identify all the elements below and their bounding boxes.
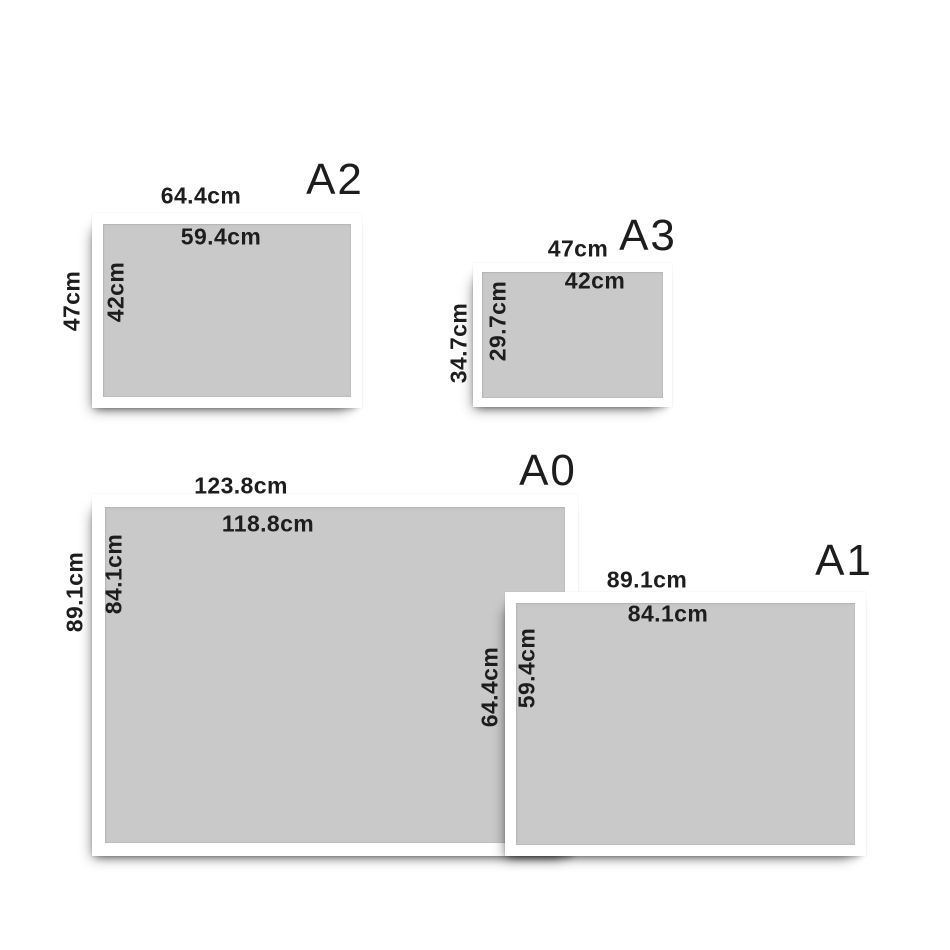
outer-width-label-a1: 89.1cm <box>607 569 687 592</box>
inner-width-label-a0: 118.8cm <box>222 513 314 536</box>
outer-width-label-a2: 64.4cm <box>161 185 241 208</box>
outer-height-label-a0: 89.1cm <box>64 552 87 632</box>
outer-height-label-a3: 34.7cm <box>448 303 471 383</box>
size-label-a1: A1 <box>815 539 873 583</box>
inner-height-label-a0: 84.1cm <box>103 534 126 614</box>
paper-a1 <box>516 603 855 845</box>
inner-height-label-a3: 29.7cm <box>487 281 510 361</box>
outer-width-label-a3: 47cm <box>548 238 608 261</box>
inner-width-label-a1: 84.1cm <box>628 603 708 626</box>
size-label-a2: A2 <box>306 158 364 202</box>
outer-width-label-a0: 123.8cm <box>194 475 288 498</box>
outer-height-label-a1: 64.4cm <box>479 647 502 727</box>
frame-a1 <box>505 592 866 856</box>
size-label-a3: A3 <box>619 214 677 258</box>
inner-width-label-a2: 59.4cm <box>181 226 261 249</box>
inner-height-label-a2: 42cm <box>105 262 128 322</box>
inner-width-label-a3: 42cm <box>565 270 625 293</box>
outer-height-label-a2: 47cm <box>61 271 84 331</box>
size-label-a0: A0 <box>519 449 577 493</box>
size-guide-canvas: A2 64.4cm 59.4cm 47cm 42cm A3 47cm 42cm … <box>0 0 950 950</box>
inner-height-label-a1: 59.4cm <box>516 628 539 708</box>
paper-a2 <box>103 224 351 397</box>
